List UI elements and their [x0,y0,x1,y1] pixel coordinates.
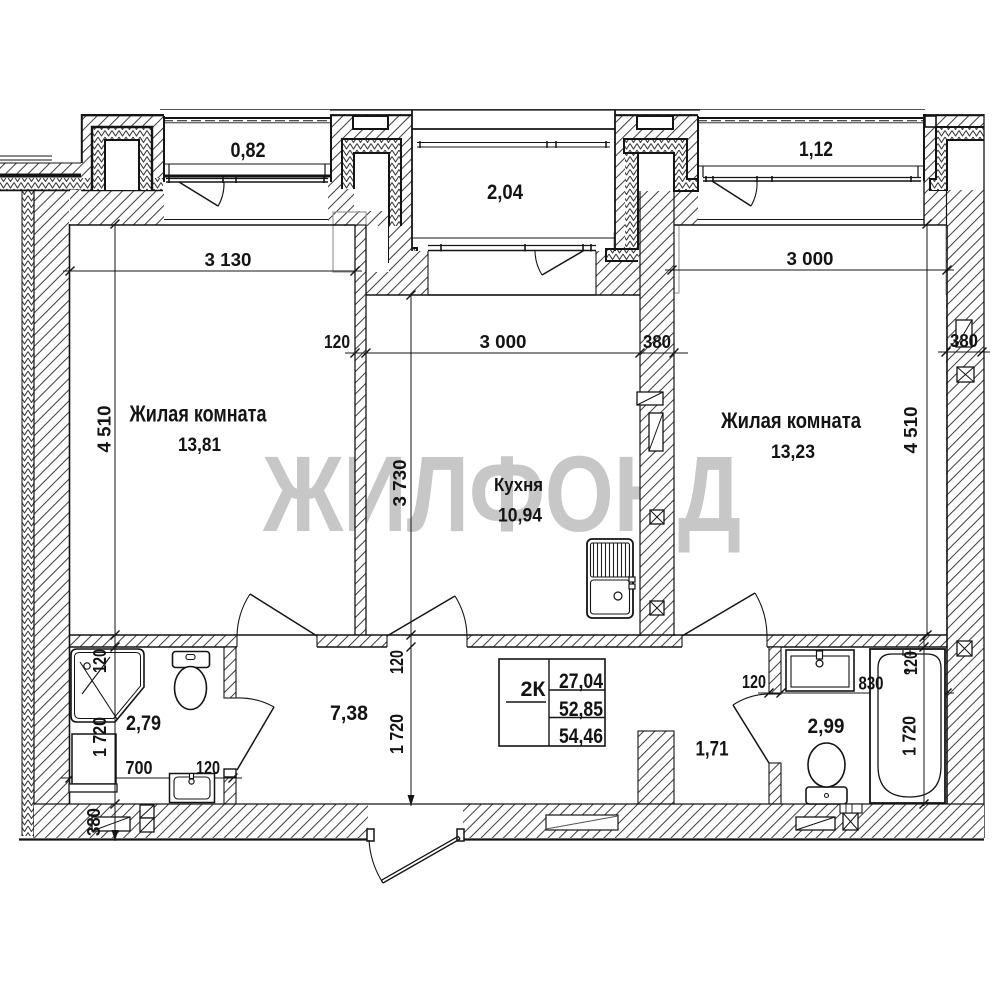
svg-text:0,82: 0,82 [231,139,266,162]
svg-text:380: 380 [83,808,104,836]
svg-text:13,81: 13,81 [178,435,221,456]
svg-text:4 510: 4 510 [900,407,921,454]
svg-text:700: 700 [126,757,153,778]
svg-text:2,04: 2,04 [487,181,523,204]
svg-text:1,12: 1,12 [799,138,833,161]
svg-text:Жилая комната: Жилая комната [129,401,267,427]
svg-text:120: 120 [386,650,407,674]
svg-text:1 720: 1 720 [89,717,110,757]
svg-text:54,46: 54,46 [559,725,603,748]
svg-text:380: 380 [950,330,978,351]
svg-text:3 000: 3 000 [787,248,834,269]
svg-text:120: 120 [89,649,110,673]
svg-text:2,99: 2,99 [808,715,845,738]
svg-text:1,71: 1,71 [696,738,729,761]
svg-text:13,23: 13,23 [771,441,815,463]
svg-text:4 510: 4 510 [94,406,115,453]
svg-text:10,94: 10,94 [498,506,542,527]
svg-text:120: 120 [742,671,766,692]
svg-text:3 000: 3 000 [480,331,527,352]
svg-text:2,79: 2,79 [126,712,161,735]
svg-text:2К: 2К [521,678,546,701]
svg-text:120: 120 [324,331,350,352]
svg-text:1 720: 1 720 [899,716,920,756]
svg-text:Жилая комната: Жилая комната [720,408,861,433]
svg-text:Кухня: Кухня [494,475,543,495]
svg-text:52,85: 52,85 [559,698,603,721]
svg-text:3 130: 3 130 [205,249,252,270]
svg-text:830: 830 [859,673,884,694]
svg-text:120: 120 [900,651,921,675]
svg-text:27,04: 27,04 [559,670,603,693]
svg-text:7,38: 7,38 [330,702,368,725]
svg-text:380: 380 [643,331,671,352]
svg-text:1 720: 1 720 [386,714,407,754]
svg-text:3 730: 3 730 [389,460,410,507]
